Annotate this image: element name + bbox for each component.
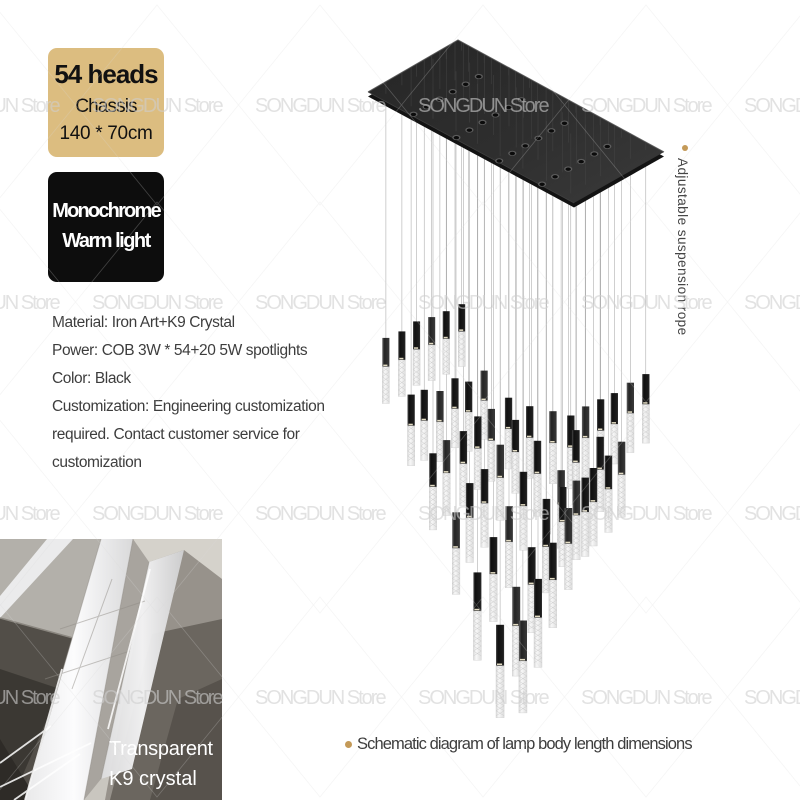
svg-text:SONGDUN Store: SONGDUN Store — [418, 503, 549, 525]
svg-text:SONGDUN Store: SONGDUN Store — [418, 95, 549, 117]
svg-text:SONGDUN Store: SONGDUN Store — [418, 687, 549, 709]
svg-text:SONGDUN Store: SONGDUN Store — [0, 503, 60, 525]
svg-text:SONGDUN Store: SONGDUN Store — [92, 503, 223, 525]
svg-text:SONGDUN Store: SONGDUN Store — [0, 687, 60, 709]
svg-text:SONGDUN Store: SONGDUN Store — [744, 292, 800, 314]
svg-text:SONGDUN Store: SONGDUN Store — [255, 687, 386, 709]
svg-text:SONGDUN Store: SONGDUN Store — [744, 503, 800, 525]
svg-text:SONGDUN Store: SONGDUN Store — [581, 95, 712, 117]
svg-text:SONGDUN Store: SONGDUN Store — [255, 503, 386, 525]
svg-text:SONGDUN Store: SONGDUN Store — [581, 292, 712, 314]
svg-text:SONGDUN Store: SONGDUN Store — [744, 95, 800, 117]
svg-text:SONGDUN Store: SONGDUN Store — [581, 503, 712, 525]
svg-text:SONGDUN Store: SONGDUN Store — [255, 95, 386, 117]
svg-text:SONGDUN Store: SONGDUN Store — [0, 292, 60, 314]
svg-text:SONGDUN Store: SONGDUN Store — [255, 292, 386, 314]
svg-text:SONGDUN Store: SONGDUN Store — [0, 95, 60, 117]
svg-text:SONGDUN Store: SONGDUN Store — [92, 292, 223, 314]
svg-text:SONGDUN Store: SONGDUN Store — [581, 687, 712, 709]
svg-text:SONGDUN Store: SONGDUN Store — [92, 687, 223, 709]
svg-text:SONGDUN Store: SONGDUN Store — [92, 95, 223, 117]
svg-text:SONGDUN Store: SONGDUN Store — [418, 292, 549, 314]
svg-text:SONGDUN Store: SONGDUN Store — [744, 687, 800, 709]
